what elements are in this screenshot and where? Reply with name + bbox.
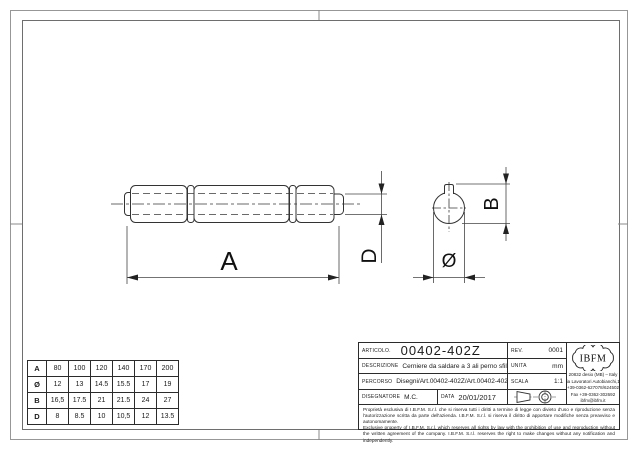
data-subcell: DATA 20/01/2017 <box>438 390 507 404</box>
company-fax: Fax +39-0362-302692 <box>571 392 615 398</box>
dim-label-diameter: Ø <box>432 252 466 271</box>
size-cell: 100 <box>69 361 91 377</box>
unita-label: UNITA <box>511 363 527 369</box>
table-row: B 16,5 17.5 21 21.5 24 27 <box>28 393 179 409</box>
rev-cell: REV. 0001 <box>508 343 567 359</box>
legal-notice: Proprietà esclusiva di I.B.F.M. S.r.l. c… <box>359 405 619 446</box>
size-row-label: Ø <box>28 377 47 393</box>
size-cell: 8.5 <box>69 409 91 425</box>
size-cell: 12 <box>135 409 157 425</box>
company-address-line: Via Lavoratori Autobianchi,18 <box>567 379 619 385</box>
scala-label: SCALA <box>511 379 528 385</box>
rev-label: REV. <box>511 348 523 354</box>
dim-label-d: D <box>360 239 380 273</box>
company-logo-cell: IBFM 20832 desio (MB) – Italy Via Lavora… <box>567 343 619 405</box>
company-phone: +39-0362-627078/624502 <box>567 385 619 391</box>
size-cell: 12 <box>47 377 69 393</box>
dim-label-b: B <box>482 187 502 221</box>
rev-value: 0001 <box>549 347 563 354</box>
size-cell: 17 <box>135 377 157 393</box>
disegnatore-value: M.C. <box>404 394 418 401</box>
articolo-value: 00402-402Z <box>401 343 481 358</box>
ibfm-logo-icon: IBFM <box>569 345 617 371</box>
first-angle-projection-icon <box>514 390 560 404</box>
disegnatore-data-cell: DISEGNATORE M.C. DATA 20/01/2017 <box>359 390 508 405</box>
company-address-line: 20832 desio (MB) – Italy <box>569 372 618 378</box>
projection-symbol-cell <box>508 390 567 405</box>
articolo-label: ARTICOLO. <box>362 348 391 354</box>
descrizione-value: Cerniere da saldare a 3 ali perno sfilab… <box>402 363 508 370</box>
size-cell: 16,5 <box>47 393 69 409</box>
ibfm-logo-text: IBFM <box>580 354 607 365</box>
percorso-label: PERCORSO <box>362 379 392 385</box>
size-cell: 170 <box>135 361 157 377</box>
descrizione-cell: DESCRIZIONE Cerniere da saldare a 3 ali … <box>359 359 508 374</box>
size-row-label: A <box>28 361 47 377</box>
articolo-cell: ARTICOLO. 00402-402Z <box>359 343 508 359</box>
disegnatore-subcell: DISEGNATORE M.C. <box>359 390 438 404</box>
percorso-value: Disegni/Art.00402-402Z/Art.00402-402Z.dw… <box>396 378 508 385</box>
title-block: ARTICOLO. 00402-402Z REV. 0001 IBFM 2083… <box>358 342 620 430</box>
size-table: A 80 100 120 140 170 200 Ø 12 13 14.5 15… <box>27 360 179 425</box>
table-row: D 8 8.5 10 10,5 12 13.5 <box>28 409 179 425</box>
unita-cell: UNITA mm <box>508 359 567 374</box>
size-cell: 27 <box>157 393 179 409</box>
size-cell: 13.5 <box>157 409 179 425</box>
disegnatore-label: DISEGNATORE <box>362 394 400 400</box>
size-cell: 21 <box>91 393 113 409</box>
size-cell: 80 <box>47 361 69 377</box>
size-cell: 120 <box>91 361 113 377</box>
size-cell: 8 <box>47 409 69 425</box>
unita-value: mm <box>552 363 563 370</box>
size-cell: 24 <box>135 393 157 409</box>
size-cell: 19 <box>157 377 179 393</box>
scala-value: 1:1 <box>554 378 563 385</box>
size-cell: 10 <box>91 409 113 425</box>
percorso-cell: PERCORSO Disegni/Art.00402-402Z/Art.0040… <box>359 374 508 390</box>
legal-text-english: Exclusive property of I.B.F.M. S.r.l. wh… <box>363 425 615 443</box>
size-cell: 14.5 <box>91 377 113 393</box>
size-cell: 15.5 <box>113 377 135 393</box>
data-value: 20/01/2017 <box>458 393 496 402</box>
dim-label-a: A <box>212 248 246 274</box>
data-label: DATA <box>441 394 454 400</box>
size-row-label: D <box>28 409 47 425</box>
size-cell: 21.5 <box>113 393 135 409</box>
table-row: A 80 100 120 140 170 200 <box>28 361 179 377</box>
company-email: ibfm@ibfm.it <box>580 398 605 404</box>
drawing-sheet: A D B Ø A 80 100 120 140 170 200 Ø 12 13… <box>0 0 638 450</box>
scala-cell: SCALA 1:1 <box>508 374 567 390</box>
descrizione-label: DESCRIZIONE <box>362 363 398 369</box>
table-row: Ø 12 13 14.5 15.5 17 19 <box>28 377 179 393</box>
size-row-label: B <box>28 393 47 409</box>
size-cell: 13 <box>69 377 91 393</box>
size-cell: 140 <box>113 361 135 377</box>
size-cell: 10,5 <box>113 409 135 425</box>
size-cell: 200 <box>157 361 179 377</box>
legal-text-italian: Proprietà esclusiva di I.B.F.M. S.r.l. c… <box>363 407 615 425</box>
size-cell: 17.5 <box>69 393 91 409</box>
